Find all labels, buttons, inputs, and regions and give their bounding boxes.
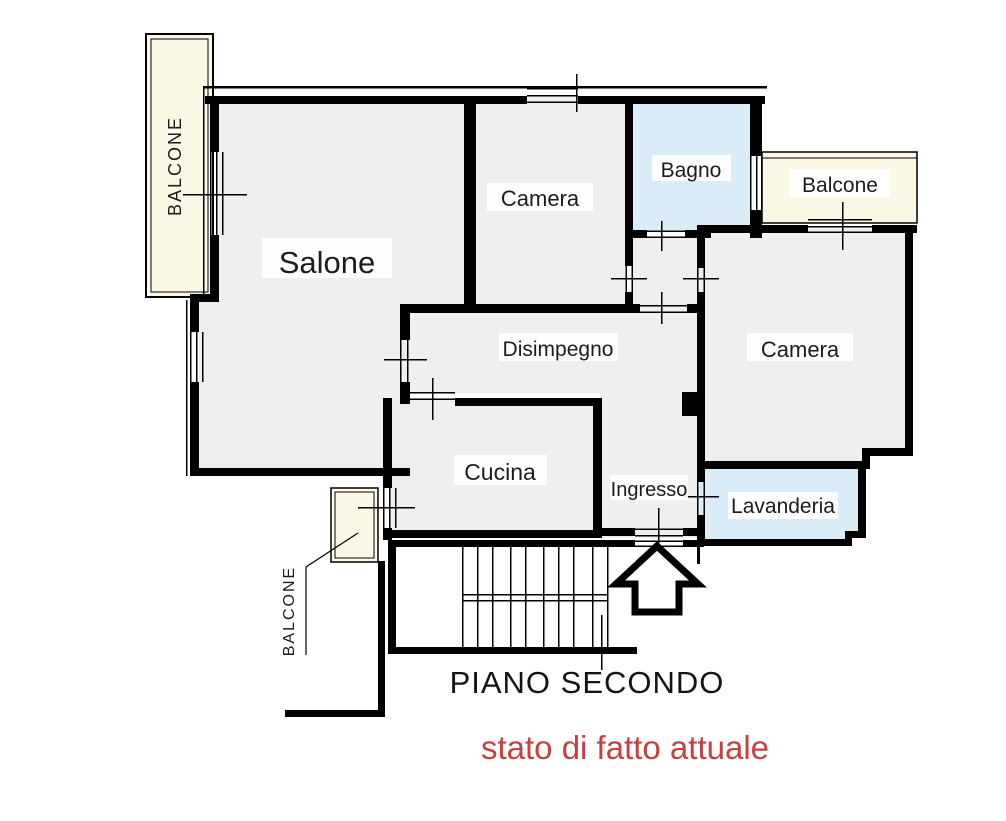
vestibule-area [633, 238, 697, 306]
camera-top-label: Camera [501, 186, 580, 211]
status-note: stato di fatto attuale [481, 729, 769, 766]
balcony-bottom [331, 488, 378, 562]
salone-label: Salone [279, 245, 376, 280]
floor-title: PIANO SECONDO [450, 665, 725, 700]
entrance-arrow [616, 546, 698, 612]
ingresso-label: Ingresso [611, 479, 688, 501]
balcone-top-right-label: Balcone [802, 174, 878, 197]
floor-plan-drawing: Salone Camera Bagno Balcone Camera Disim… [0, 0, 1006, 821]
cucina-label: Cucina [464, 459, 536, 485]
disimpegno-label: Disimpegno [503, 338, 614, 361]
balcone-bottom-label: BALCONE [281, 566, 298, 656]
lavanderia-label: Lavanderia [731, 495, 835, 518]
bagno-label: Bagno [661, 159, 722, 182]
floor-plan-page: Salone Camera Bagno Balcone Camera Disim… [0, 0, 1006, 821]
balcone-top-left-label: BALCONE [165, 116, 185, 216]
camera-right-label: Camera [761, 337, 840, 362]
